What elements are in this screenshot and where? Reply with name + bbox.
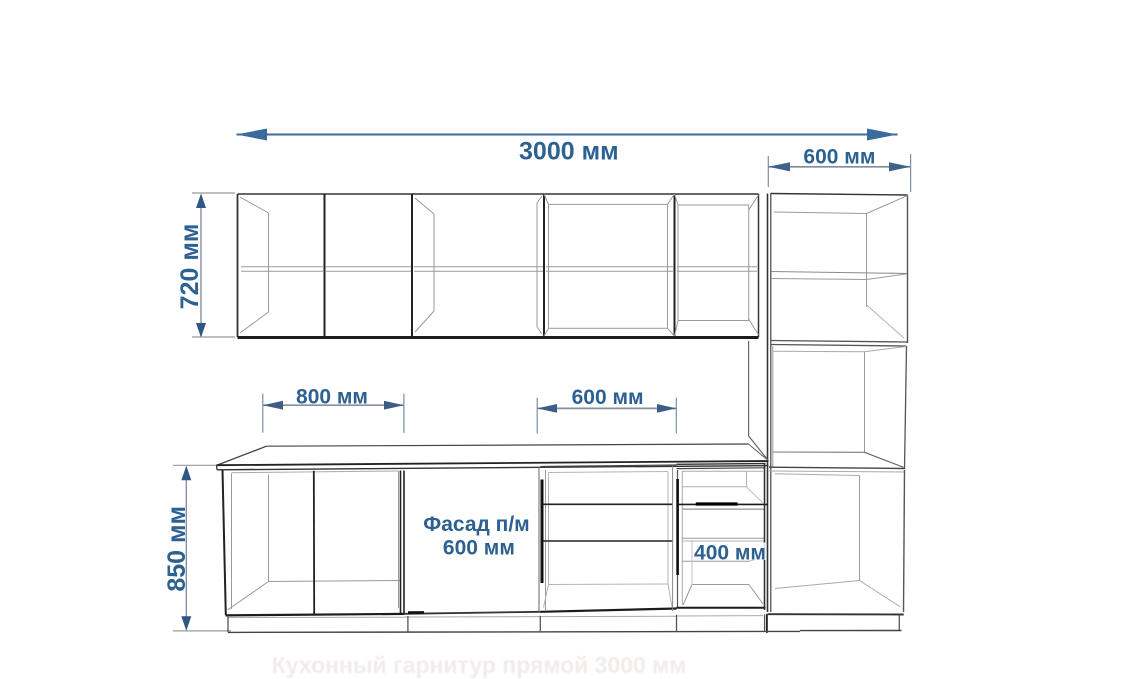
svg-text:Фасад п/м: Фасад п/м: [423, 513, 529, 536]
svg-text:600 мм: 600 мм: [803, 145, 875, 168]
svg-text:850 мм: 850 мм: [163, 506, 191, 592]
svg-text:3000 мм: 3000 мм: [519, 138, 619, 166]
svg-text:720 мм: 720 мм: [176, 224, 204, 310]
svg-text:800 мм: 800 мм: [296, 386, 368, 409]
svg-text:600 мм: 600 мм: [572, 386, 644, 409]
svg-text:600 мм: 600 мм: [443, 537, 515, 560]
svg-text:400 мм: 400 мм: [694, 542, 766, 565]
